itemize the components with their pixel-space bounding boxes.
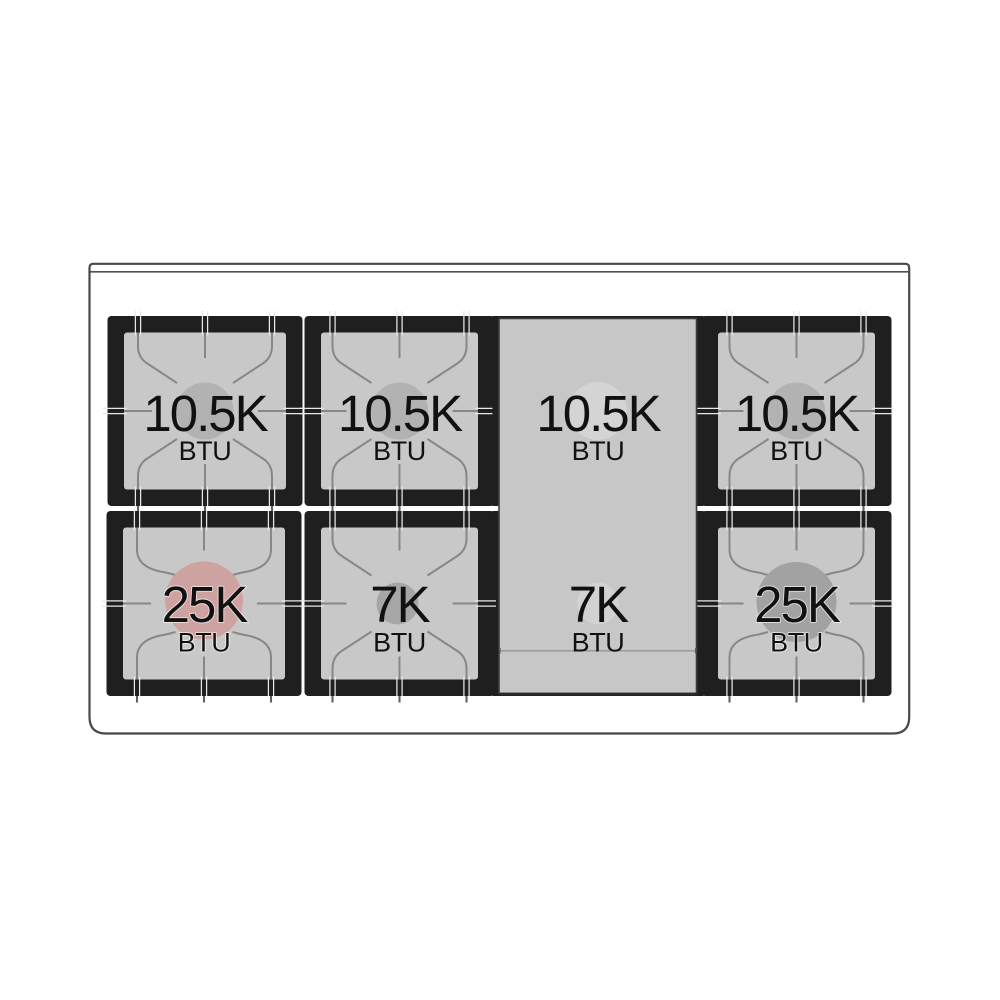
svg-text:BTU: BTU [572,628,625,658]
svg-text:BTU: BTU [179,436,232,466]
svg-text:BTU: BTU [770,628,823,658]
svg-text:10.5K: 10.5K [735,385,860,442]
svg-text:7K: 7K [569,576,629,633]
svg-text:10.5K: 10.5K [143,385,268,442]
svg-text:BTU: BTU [373,436,426,466]
svg-text:BTU: BTU [572,436,625,466]
svg-text:10.5K: 10.5K [536,385,661,442]
svg-text:25K: 25K [162,576,249,633]
svg-text:BTU: BTU [770,436,823,466]
svg-text:BTU: BTU [373,628,426,658]
svg-text:25K: 25K [754,576,841,633]
svg-text:7K: 7K [370,576,430,633]
svg-text:10.5K: 10.5K [338,385,463,442]
svg-text:BTU: BTU [178,628,231,658]
